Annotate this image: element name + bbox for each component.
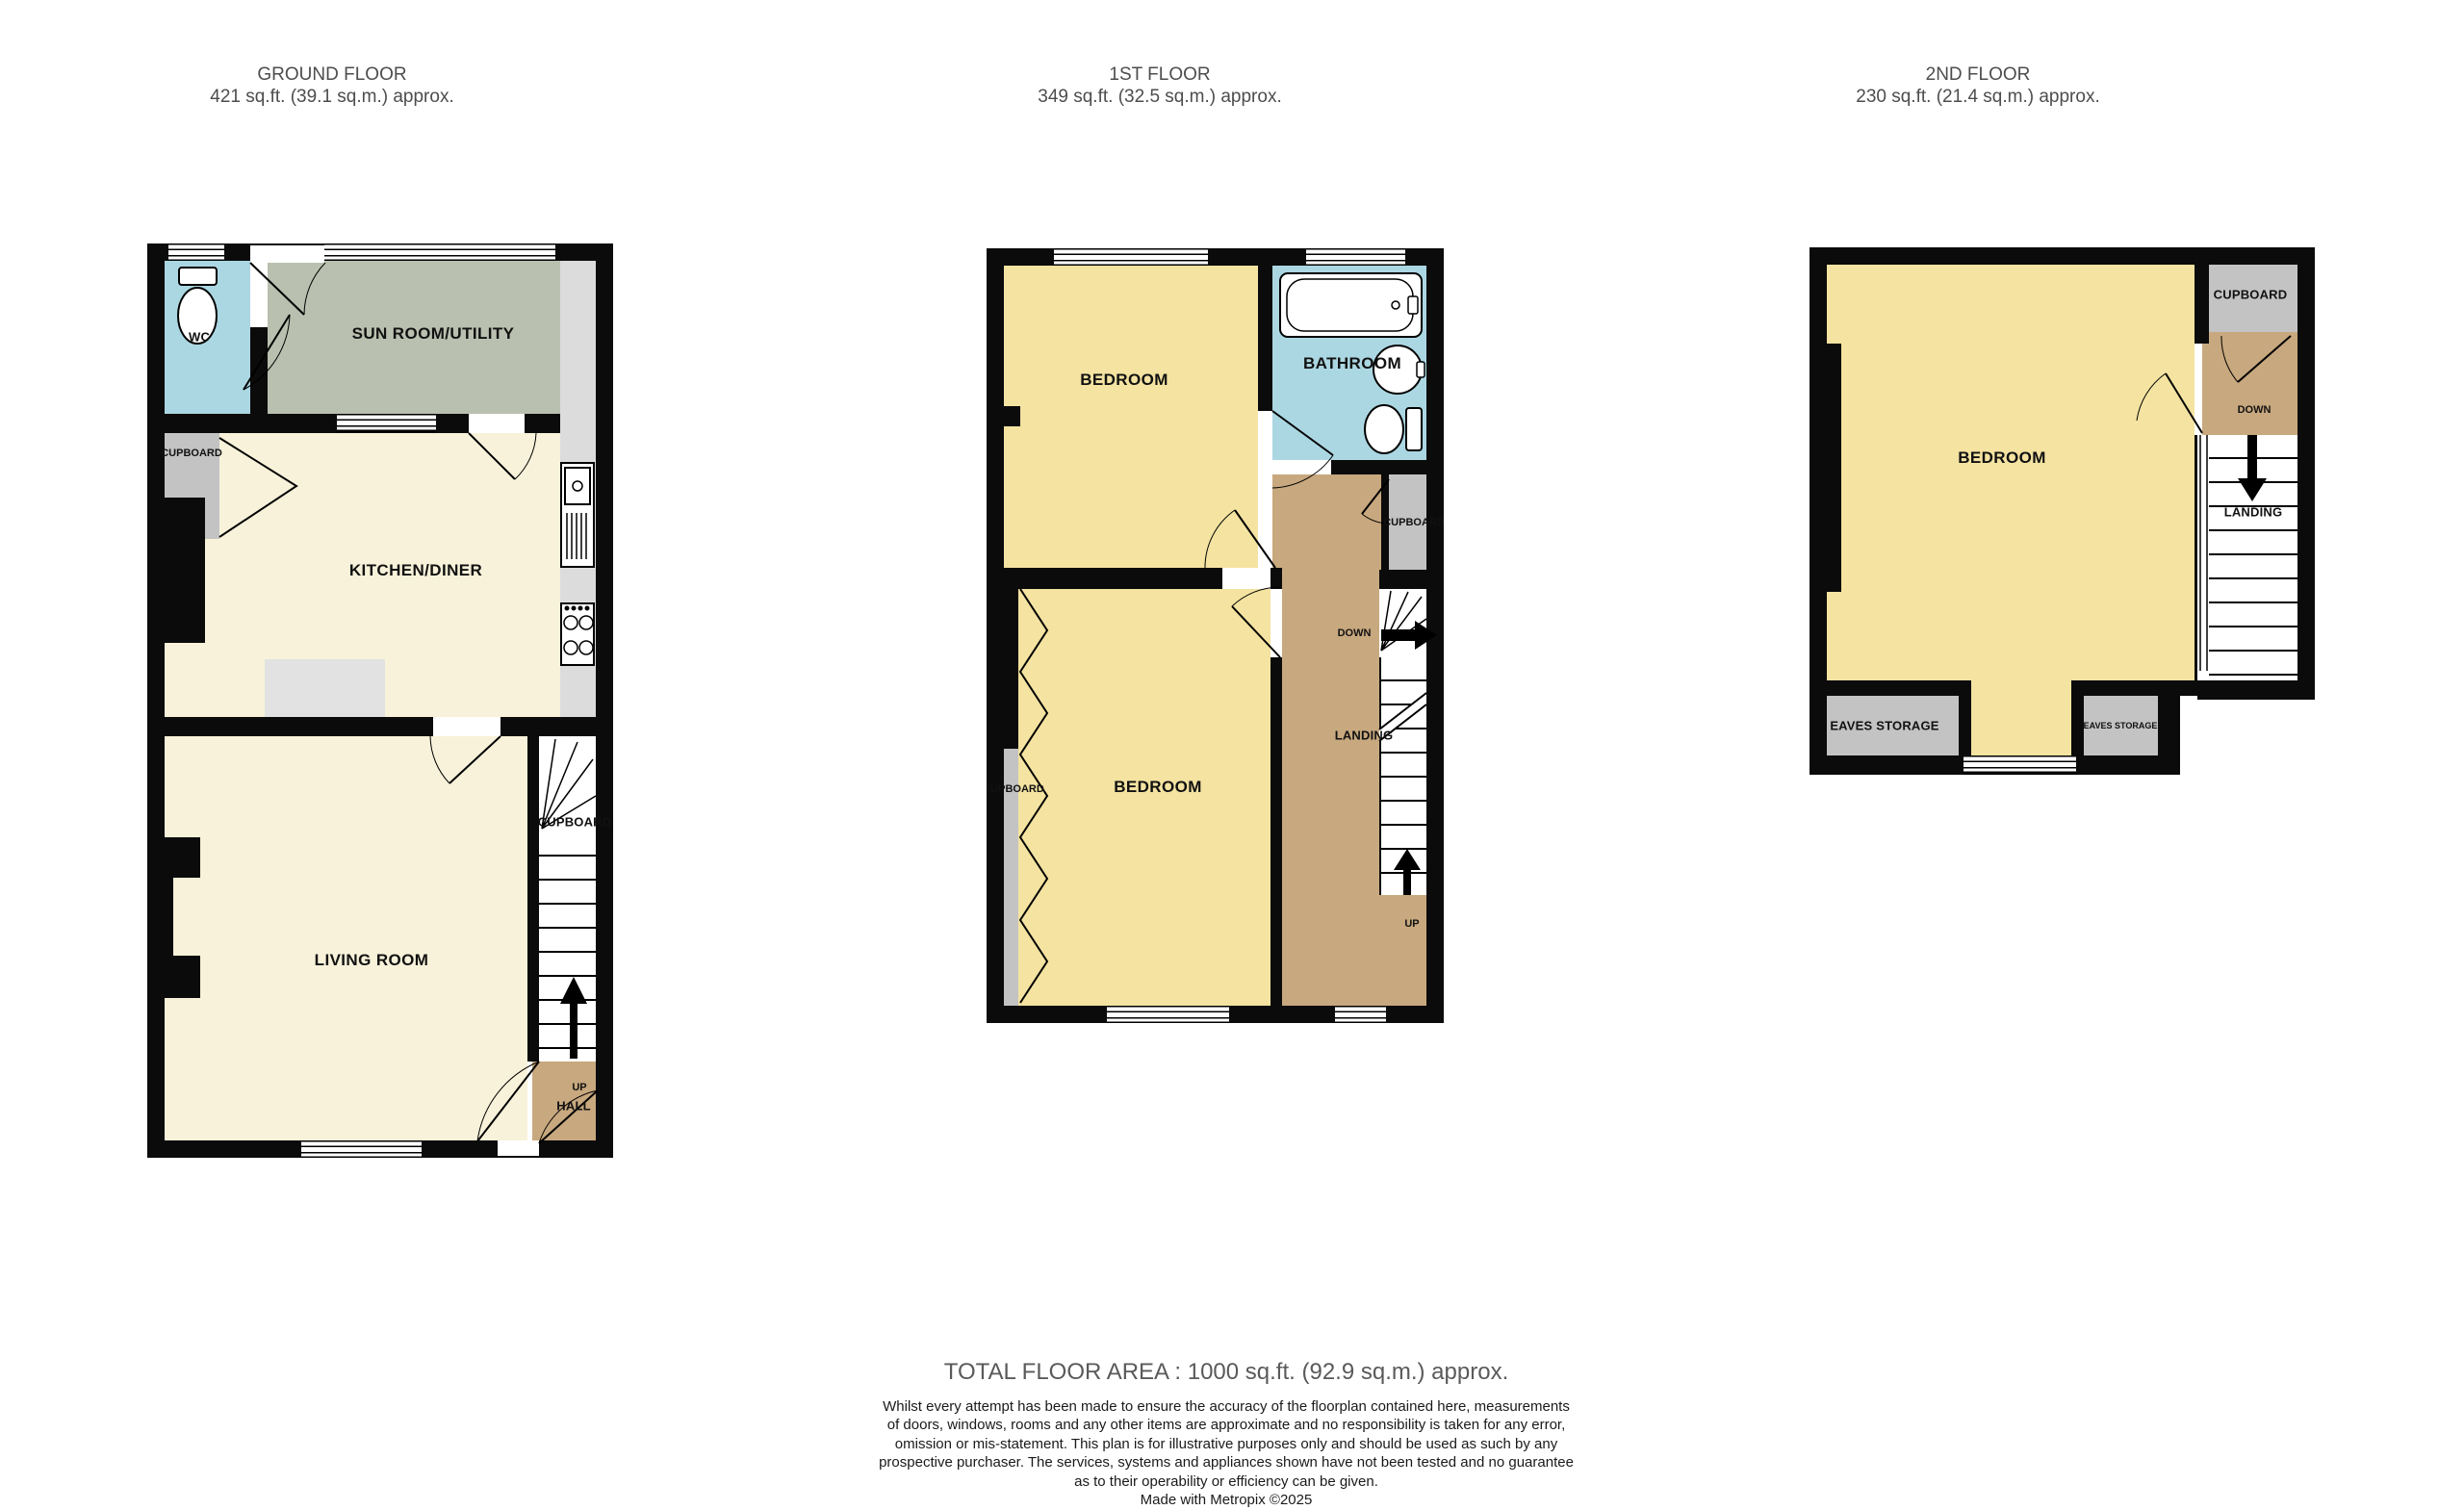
floor-title-ground-area: 421 sq.ft. (39.1 sq.m.) approx. bbox=[91, 86, 573, 108]
up-arrow-icon bbox=[560, 977, 587, 1059]
room-label-cupboard-landing: CUPBOARD bbox=[1383, 517, 1444, 528]
door-leaf bbox=[1272, 411, 1333, 455]
room-label-landing: LANDING bbox=[1335, 729, 1394, 743]
room-label-kitchen: KITCHEN/DINER bbox=[349, 561, 482, 580]
disclaimer: Whilst every attempt has been made to en… bbox=[841, 1397, 1611, 1509]
floor-title-ground-name: GROUND FLOOR bbox=[91, 64, 573, 86]
room-label-landing: LANDING bbox=[2224, 505, 2283, 520]
door-arc bbox=[1272, 455, 1333, 488]
first-floor-plan: BEDROOM BATHROOM CUPBOARD DOWN LANDING B… bbox=[987, 248, 1444, 1023]
room-label-wc: WC bbox=[189, 330, 210, 345]
toilet-icon bbox=[1365, 405, 1422, 453]
room-label-bedroom: BEDROOM bbox=[1958, 448, 2046, 468]
door-leaf bbox=[477, 1062, 539, 1141]
door-arc bbox=[1205, 510, 1235, 568]
room-label-bedroom-front: BEDROOM bbox=[1080, 371, 1168, 390]
disclaimer-line: Whilst every attempt has been made to en… bbox=[841, 1397, 1611, 1416]
room-label-stairs-cupboard: CUPBOARD bbox=[538, 815, 612, 830]
door-arc bbox=[304, 263, 325, 315]
room-label-cupboard: CUPBOARD bbox=[2214, 288, 2288, 302]
room-label-cupboard-kitchen: CUPBOARD bbox=[161, 448, 222, 459]
credit-line: Made with Metropix ©2025 bbox=[841, 1491, 1611, 1509]
room-label-hall: HALL bbox=[556, 1099, 590, 1113]
door-leaf bbox=[449, 736, 500, 783]
door-leaf bbox=[2238, 336, 2291, 382]
up-arrow-icon bbox=[1394, 849, 1421, 895]
room-label-eaves-right: EAVES STORAGE bbox=[2084, 721, 2158, 730]
floor-title-second-area: 230 sq.ft. (21.4 sq.m.) approx. bbox=[1737, 86, 2219, 108]
floorplan-page: GROUND FLOOR 421 sq.ft. (39.1 sq.m.) app… bbox=[0, 0, 2464, 1510]
door-leaf bbox=[469, 433, 515, 479]
stair-void-lines bbox=[2200, 435, 2207, 671]
door-leaf bbox=[250, 263, 304, 315]
room-label-bedroom-back: BEDROOM bbox=[1114, 778, 1202, 797]
label-up: UP bbox=[572, 1082, 586, 1093]
room-label-bathroom: BATHROOM bbox=[1303, 354, 1401, 373]
door-arc bbox=[1232, 587, 1280, 606]
door-arc bbox=[515, 433, 536, 479]
door-leaf bbox=[1362, 479, 1389, 514]
floor-title-first: 1ST FLOOR 349 sq.ft. (32.5 sq.m.) approx… bbox=[919, 64, 1400, 108]
floor-title-ground: GROUND FLOOR 421 sq.ft. (39.1 sq.m.) app… bbox=[91, 64, 573, 108]
floor-title-first-area: 349 sq.ft. (32.5 sq.m.) approx. bbox=[919, 86, 1400, 108]
label-down: DOWN bbox=[2238, 404, 2271, 416]
door-leaf bbox=[244, 315, 290, 390]
ground-floor-symbols bbox=[147, 243, 613, 1158]
bath-icon bbox=[1280, 273, 1422, 337]
second-floor-plan: BEDROOM CUPBOARD DOWN LANDING EAVES STOR… bbox=[1809, 247, 2315, 775]
disclaimer-line: prospective purchaser. The services, sys… bbox=[841, 1453, 1611, 1472]
room-label-living-room: LIVING ROOM bbox=[315, 951, 429, 970]
label-up: UP bbox=[1404, 918, 1419, 930]
ground-floor-plan: WC SUN ROOM/UTILITY CUPBOARD KITCHEN/DIN… bbox=[147, 243, 613, 1158]
disclaimer-line: omission or mis-statement. This plan is … bbox=[841, 1435, 1611, 1453]
down-arrow-icon bbox=[2238, 435, 2267, 501]
footer: TOTAL FLOOR AREA : 1000 sq.ft. (92.9 sq.… bbox=[841, 1359, 1611, 1509]
label-down: DOWN bbox=[1338, 627, 1372, 639]
door-leaf bbox=[1232, 606, 1280, 657]
wardrobe-zigzag bbox=[1020, 589, 1047, 1003]
floor-title-first-name: 1ST FLOOR bbox=[919, 64, 1400, 86]
total-floor-area: TOTAL FLOOR AREA : 1000 sq.ft. (92.9 sq.… bbox=[841, 1359, 1611, 1386]
room-label-sun-room: SUN ROOM/UTILITY bbox=[352, 324, 515, 344]
room-label-eaves-left: EAVES STORAGE bbox=[1830, 719, 1938, 733]
floor-title-second-name: 2ND FLOOR bbox=[1737, 64, 2219, 86]
disclaimer-line: of doors, windows, rooms and any other i… bbox=[841, 1416, 1611, 1434]
door-arc bbox=[2221, 336, 2238, 382]
disclaimer-line: as to their operability or efficiency ca… bbox=[841, 1472, 1611, 1491]
door-arc bbox=[2137, 373, 2166, 421]
kitchen-sink-icon bbox=[561, 463, 594, 567]
floor-title-second: 2ND FLOOR 230 sq.ft. (21.4 sq.m.) approx… bbox=[1737, 64, 2219, 108]
door-leaf bbox=[2166, 373, 2202, 433]
hob-icon bbox=[561, 603, 594, 665]
door-leaf bbox=[1235, 510, 1275, 568]
bifold-door bbox=[219, 438, 296, 537]
door-arc bbox=[430, 736, 449, 783]
room-label-cupboard-left: CUPBOARD bbox=[987, 783, 1044, 795]
